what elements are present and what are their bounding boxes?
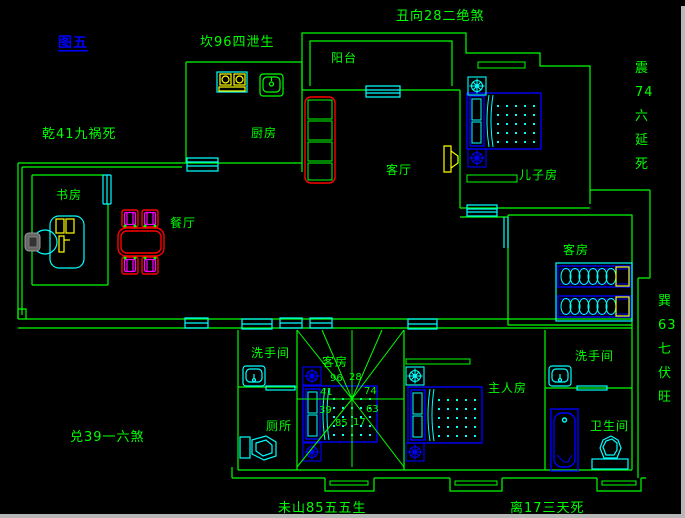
window-border-right bbox=[681, 6, 685, 518]
compass-number: 63 bbox=[366, 404, 379, 415]
compass-number: 41 bbox=[320, 387, 333, 398]
figure-link-underline bbox=[58, 50, 88, 52]
compass-number: 17 bbox=[353, 417, 366, 428]
room-label-balcony: 阳台 bbox=[331, 50, 357, 65]
window-border-bottom bbox=[0, 514, 685, 518]
svg-text:63: 63 bbox=[658, 318, 677, 333]
toilet-west bbox=[240, 436, 276, 460]
bay-window bbox=[602, 481, 636, 485]
stove bbox=[217, 72, 247, 92]
label-qian: 乾41九祸死 bbox=[42, 127, 117, 142]
bed-son bbox=[467, 93, 541, 149]
bathtub bbox=[551, 409, 578, 471]
study-desk bbox=[50, 216, 84, 268]
svg-text:震: 震 bbox=[635, 61, 649, 76]
fengshui-labels: 坎96四泄生 丑向28二绝煞 乾41九祸死 兑39一六煞 未山85五五生 离17… bbox=[42, 8, 677, 516]
svg-text:74: 74 bbox=[635, 85, 654, 100]
guest-beds bbox=[556, 263, 632, 321]
svg-text:旺: 旺 bbox=[658, 390, 672, 405]
svg-text:伏: 伏 bbox=[658, 366, 672, 381]
aircon-icon bbox=[406, 443, 424, 461]
fengshui-compass: 96 28 41 74 39 63 85 17 bbox=[297, 330, 404, 467]
toilet-bathroom bbox=[592, 436, 628, 469]
label-dui: 兑39一六煞 bbox=[70, 430, 145, 445]
aircon-icon bbox=[406, 367, 424, 385]
room-label-dining: 餐厅 bbox=[170, 215, 196, 230]
label-chou: 丑向28二绝煞 bbox=[396, 8, 485, 24]
sink-west bbox=[243, 366, 265, 386]
cad-floorplan-canvas: 96 28 41 74 39 63 85 17 图五 坎96四泄生 丑向28二绝… bbox=[0, 0, 685, 518]
window-balcony bbox=[366, 86, 400, 97]
aircon-icon bbox=[468, 149, 486, 167]
room-label-bathroom: 卫生间 bbox=[590, 419, 629, 433]
room-label-guest-center: 客房 bbox=[322, 354, 348, 369]
window-kitchen bbox=[187, 158, 218, 171]
room-label-toilet: 厕所 bbox=[266, 419, 292, 433]
compass-number: 39 bbox=[319, 405, 332, 416]
label-li: 离17三天死 bbox=[510, 500, 585, 516]
kitchen-sink bbox=[260, 74, 283, 96]
label-kan: 坎96四泄生 bbox=[200, 35, 275, 50]
shelf bbox=[406, 359, 470, 364]
figure-link[interactable]: 图五 bbox=[58, 35, 88, 51]
sink-east bbox=[549, 366, 571, 386]
compass-number: 28 bbox=[349, 372, 362, 383]
label-zhen-vertical: 震 74 六 延 死 bbox=[635, 61, 654, 172]
compass-number: 74 bbox=[364, 386, 377, 397]
room-label-living: 客厅 bbox=[386, 162, 412, 177]
aircon-icon bbox=[303, 443, 321, 461]
sofa bbox=[305, 97, 335, 183]
svg-text:延: 延 bbox=[635, 133, 649, 148]
room-label-guest-east: 客房 bbox=[563, 242, 589, 257]
figure-title[interactable]: 图五 bbox=[58, 35, 88, 52]
floor-plan-drawing: 96 28 41 74 39 63 85 17 图五 坎96四泄生 丑向28二绝… bbox=[0, 0, 685, 518]
study-chair bbox=[25, 230, 57, 254]
window-son-room bbox=[467, 205, 497, 216]
compass-number: 85 bbox=[335, 418, 348, 429]
door-guest-east bbox=[504, 217, 508, 248]
room-label-kitchen: 厨房 bbox=[251, 125, 277, 140]
svg-text:巽: 巽 bbox=[658, 294, 672, 309]
tv bbox=[444, 146, 458, 172]
room-label-master: 主人房 bbox=[488, 380, 527, 395]
shelf bbox=[478, 62, 525, 68]
dining-table bbox=[118, 228, 164, 256]
compass-number: 96 bbox=[330, 373, 343, 384]
dining-table-set bbox=[118, 210, 164, 274]
label-xun-vertical: 巽 63 七 伏 旺 bbox=[658, 294, 677, 405]
room-label-washroom-east: 洗手间 bbox=[575, 349, 614, 363]
label-wei: 未山85五五生 bbox=[278, 501, 367, 516]
room-label-washroom-west: 洗手间 bbox=[251, 346, 290, 360]
door-study bbox=[103, 175, 111, 204]
aircon-icon bbox=[303, 367, 321, 385]
shelf bbox=[467, 175, 517, 182]
svg-text:死: 死 bbox=[635, 157, 649, 172]
bed-master bbox=[408, 387, 482, 443]
bay-window bbox=[330, 481, 368, 485]
bay-window bbox=[455, 481, 497, 485]
svg-text:六: 六 bbox=[635, 109, 649, 124]
room-label-son: 儿子房 bbox=[519, 167, 558, 182]
svg-text:七: 七 bbox=[658, 342, 672, 357]
room-label-study: 书房 bbox=[56, 187, 82, 202]
